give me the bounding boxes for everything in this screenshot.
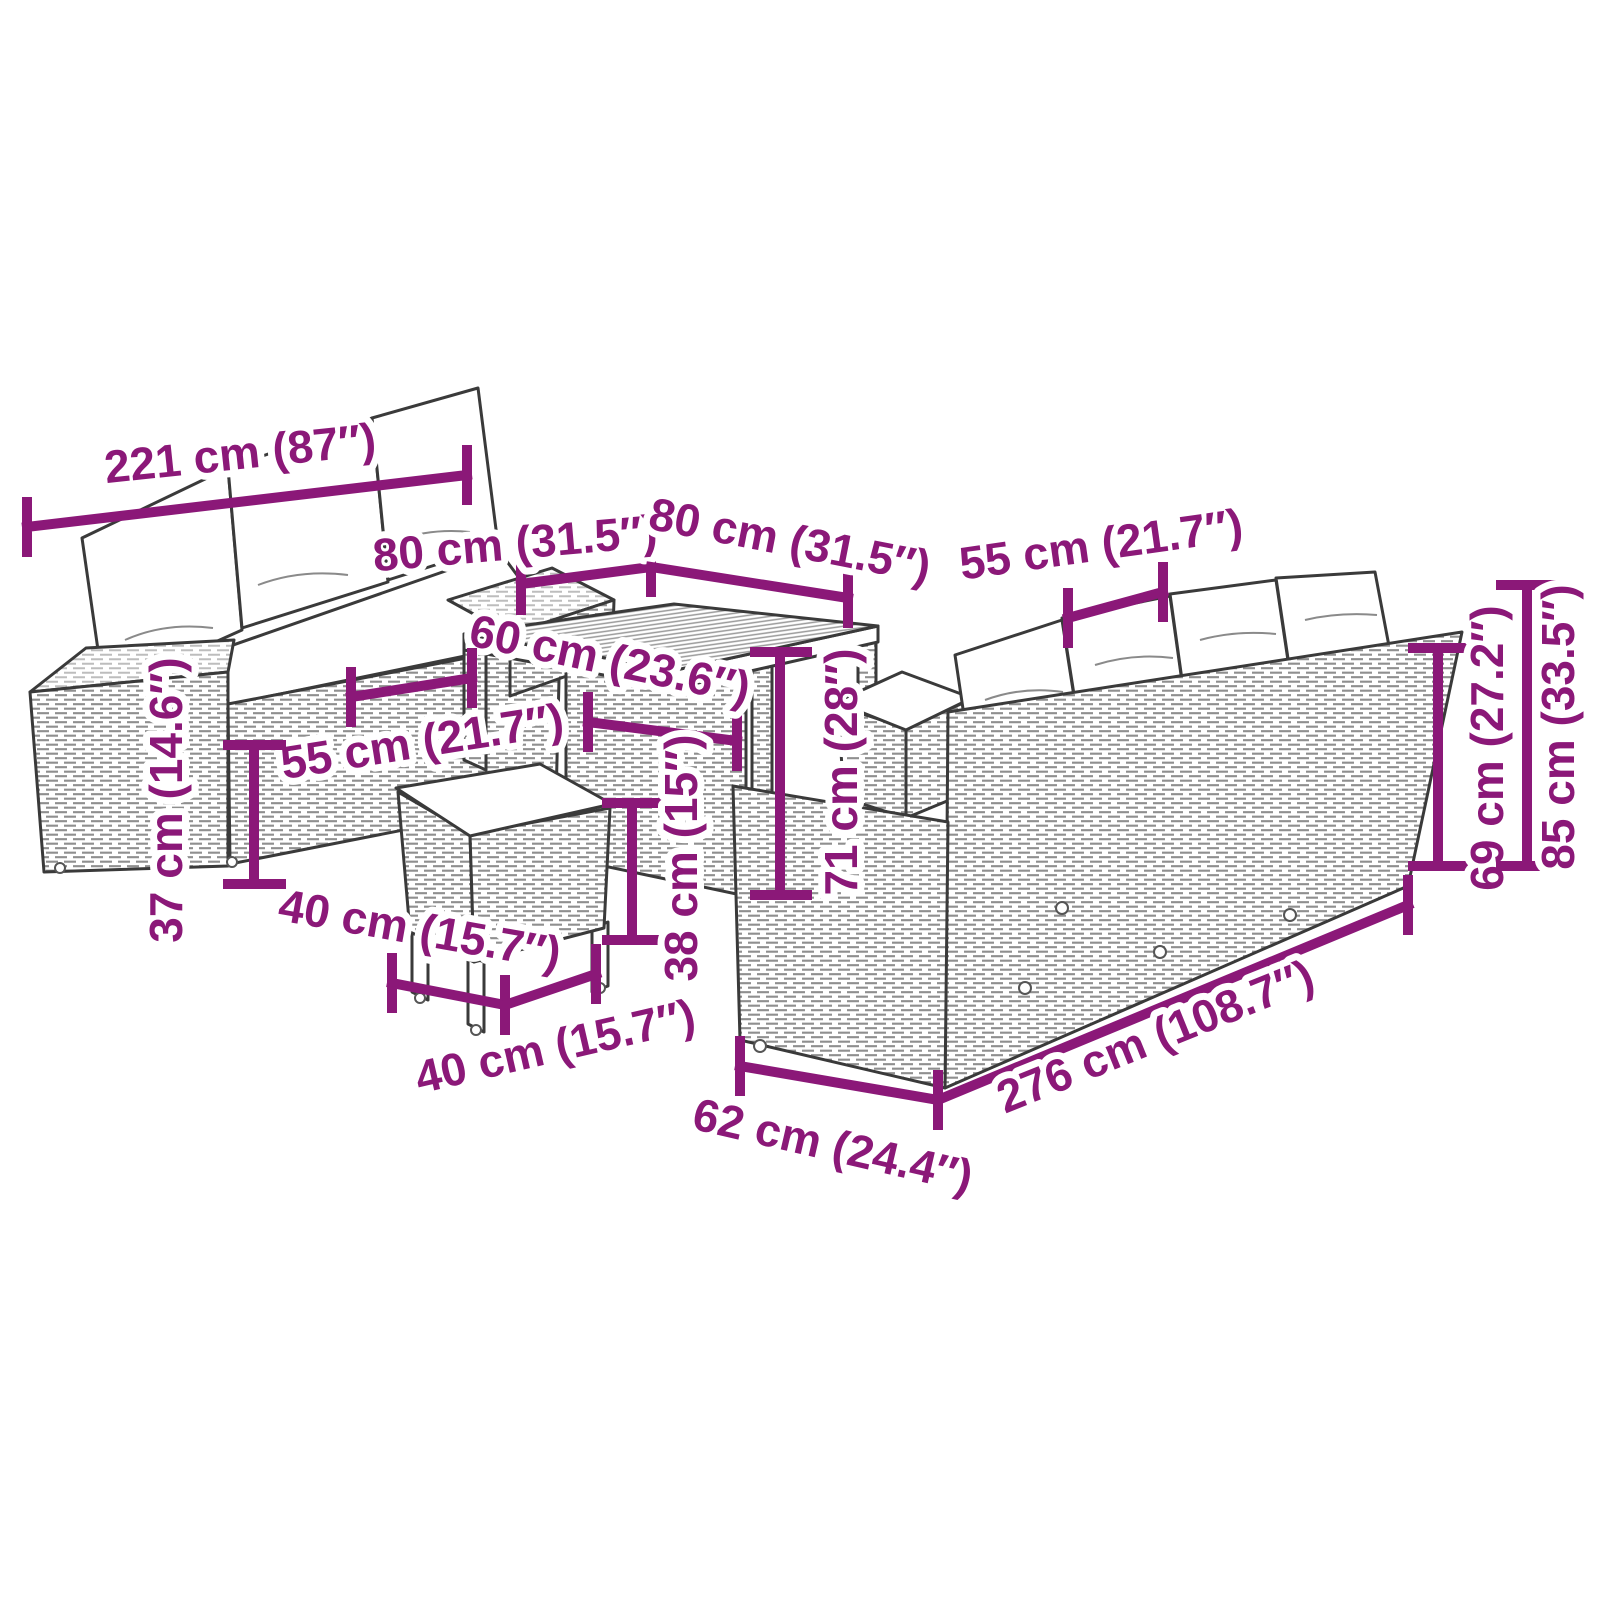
sofa-foot xyxy=(1284,909,1296,921)
dim-label-69: 69 cm (27.2″) xyxy=(1461,605,1513,890)
sofa-foot xyxy=(1056,902,1068,914)
sofa-foot xyxy=(1154,946,1166,958)
sofa-foot xyxy=(1019,982,1031,994)
dimension-diagram-page: 221 cm (87″) 80 cm (31.5″) 80 cm (31.5″)… xyxy=(0,0,1600,1600)
dim-label-55-right: 55 cm (21.7″) xyxy=(956,498,1246,589)
dim-label-85: 85 cm (33.5″) xyxy=(1532,584,1584,869)
furniture-dimension-diagram: 221 cm (87″) 80 cm (31.5″) 80 cm (31.5″)… xyxy=(0,0,1600,1600)
sofa-foot xyxy=(55,863,65,873)
stool-foot xyxy=(415,993,425,1003)
dim-line xyxy=(392,958,505,1030)
dim-label-40-right: 40 cm (15.7″) xyxy=(410,989,700,1104)
table-leg-right xyxy=(752,658,772,798)
dim-label-37: 37 cm (14.6″) xyxy=(140,657,192,942)
dim-total-height-85: 85 cm (33.5″) xyxy=(1501,584,1584,869)
dim-label-38: 38 cm (15″) xyxy=(655,734,707,981)
stool-foot xyxy=(471,1025,481,1035)
left-sofa-armrest-front xyxy=(30,672,228,872)
dim-label-71: 71 cm (28″) xyxy=(815,648,867,895)
dim-table-top-right-80: 80 cm (31.5″) xyxy=(645,487,935,623)
sofa-foot xyxy=(227,857,237,867)
sofa-foot xyxy=(754,1040,766,1052)
